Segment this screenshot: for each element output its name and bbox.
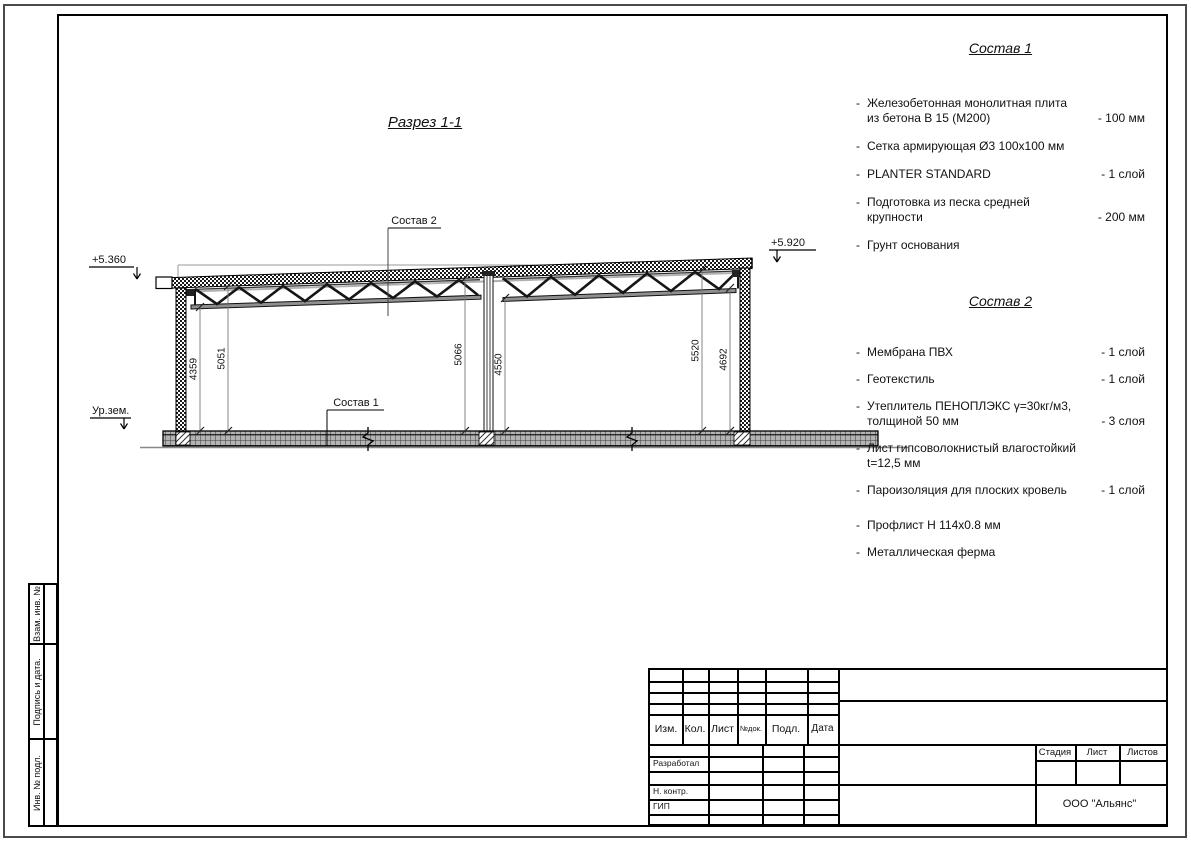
grid-line xyxy=(708,744,710,824)
bullet-dash: - xyxy=(856,545,867,560)
spec-item-text: Грунт основания xyxy=(867,238,960,253)
divider xyxy=(43,645,45,738)
stamp-label: Взам. инв. № xyxy=(32,586,42,642)
spec2-item: - Утеплитель ПЕНОПЛЭКС γ=30кг/м3, толщин… xyxy=(856,399,1145,429)
section-drawing: 4359 5051 5066 4550 xyxy=(89,215,908,451)
spec2-item: - Профлист Н 114х0.8 мм xyxy=(856,518,1145,533)
divider xyxy=(43,740,45,825)
tb-stage-list: Лист xyxy=(1075,744,1119,760)
spec2-item: - Лист гипсоволокнистый влагостойкий t=1… xyxy=(856,441,1145,471)
floor-slab xyxy=(163,431,878,446)
bullet-dash: - xyxy=(856,238,867,253)
tb-company: ООО "Альянс" xyxy=(1035,784,1164,824)
bullet-dash: - xyxy=(856,518,867,533)
stamp-cell-vzam: Взам. инв. № xyxy=(28,583,58,645)
spec-item-text: Подготовка из песка средней крупности xyxy=(867,195,1030,225)
grid-line xyxy=(650,814,838,816)
spec-item-value: - 100 мм xyxy=(1092,111,1145,126)
spec-item-value: - 3 слоя xyxy=(1095,414,1145,429)
tb-col-podl: Подл. xyxy=(765,714,807,744)
spec1-item: - Сетка армирующая Ø3 100х100 мм xyxy=(856,139,1145,154)
grid-line xyxy=(838,670,840,824)
dimension-4550: 4550 xyxy=(494,294,510,435)
spec-item-value: - 1 слой xyxy=(1095,345,1145,360)
spec-item-text: Сетка армирующая Ø3 100х100 мм xyxy=(867,139,1064,154)
spec-item-text: Профлист Н 114х0.8 мм xyxy=(867,518,1001,533)
bullet-dash: - xyxy=(856,441,867,456)
grid-line xyxy=(650,771,838,773)
column-middle xyxy=(482,271,495,431)
bullet-dash: - xyxy=(856,139,867,154)
grid-line xyxy=(650,681,838,683)
tb-role-nkontr: Н. контр. xyxy=(653,784,707,799)
spec2-item: - Пароизоляция для плоских кровель - 1 с… xyxy=(856,483,1145,498)
svg-text:+5.360: +5.360 xyxy=(92,254,126,266)
divider xyxy=(43,585,45,643)
footing-block-right xyxy=(734,432,750,445)
spec-sostav2: Состав 2 - Мембрана ПВХ - 1 слой - Геоте… xyxy=(856,293,1145,572)
grid-line xyxy=(762,744,764,824)
spec-item-text: Утеплитель ПЕНОПЛЭКС γ=30кг/м3, толщиной… xyxy=(867,399,1071,429)
spec-item-text: Металлическая ферма xyxy=(867,545,995,560)
ground-level-marker: Ур.зем. xyxy=(90,405,131,429)
section-title: Разрез 1-1 xyxy=(352,114,498,131)
tb-stage-listov: Листов xyxy=(1119,744,1166,760)
bullet-dash: - xyxy=(856,167,867,182)
spec-item-text: Геотекстиль xyxy=(867,372,935,387)
dimension-4692: 4692 xyxy=(719,284,735,435)
svg-text:Состав 2: Состав 2 xyxy=(391,215,437,227)
tb-col-list: Лист xyxy=(708,714,737,744)
spec2-item: - Мембрана ПВХ - 1 слой xyxy=(856,345,1145,360)
spec-item-value: - 1 слой xyxy=(1095,167,1145,182)
grid-line xyxy=(803,744,805,824)
bullet-dash: - xyxy=(856,483,867,498)
tb-stage-stadiya: Стадия xyxy=(1035,744,1075,760)
spec2-item: - Металлическая ферма xyxy=(856,545,1145,560)
spec1-item: - Подготовка из песка средней крупности … xyxy=(856,195,1145,225)
grid-line xyxy=(1035,760,1166,762)
svg-text:5520: 5520 xyxy=(691,339,702,362)
svg-text:4359: 4359 xyxy=(189,357,200,380)
spec-item-text: PLANTER STANDARD xyxy=(867,167,991,182)
bullet-dash: - xyxy=(856,372,867,387)
tb-col-data: Дата xyxy=(807,714,838,744)
footing-block-left xyxy=(176,432,190,445)
grid-line xyxy=(838,700,1166,702)
grid-line xyxy=(650,692,838,694)
spec2-heading: Состав 2 xyxy=(856,293,1145,309)
svg-text:+5.920: +5.920 xyxy=(771,237,805,249)
bullet-dash: - xyxy=(856,96,867,111)
stamp-label: Инв. № подл. xyxy=(32,754,42,810)
bullet-dash: - xyxy=(856,345,867,360)
svg-text:5051: 5051 xyxy=(217,347,228,370)
spec-item-text: Лист гипсоволокнистый влагостойкий t=12,… xyxy=(867,441,1076,471)
titleblock: Изм. Кол. Лист №док. Подл. Дата Разработ… xyxy=(648,668,1168,826)
svg-text:5066: 5066 xyxy=(454,343,465,366)
spec-item-value: - 1 слой xyxy=(1095,372,1145,387)
tb-role-razrabotal: Разработал xyxy=(653,756,707,771)
footing-block-middle xyxy=(479,432,494,445)
spec1-heading: Состав 1 xyxy=(856,40,1145,56)
svg-text:4550: 4550 xyxy=(494,353,505,376)
bullet-dash: - xyxy=(856,399,867,414)
svg-text:Состав 1: Состав 1 xyxy=(333,397,379,409)
tb-col-izm: Изм. xyxy=(650,714,682,744)
spec2-item: - Геотекстиль - 1 слой xyxy=(856,372,1145,387)
elevation-marker-left: +5.360 xyxy=(89,254,141,279)
wall-right xyxy=(740,268,750,432)
spec-item-value: - 1 слой xyxy=(1095,483,1145,498)
spec1-item: - Грунт основания xyxy=(856,238,1145,253)
svg-text:4692: 4692 xyxy=(719,348,730,371)
bullet-dash: - xyxy=(856,195,867,210)
dimension-4359: 4359 xyxy=(189,303,205,435)
spec-item-text: Железобетонная монолитная плита из бетон… xyxy=(867,96,1067,126)
spec1-item: - Железобетонная монолитная плита из бет… xyxy=(856,96,1145,126)
stamp-cell-podpis: Подпись и дата. xyxy=(28,643,58,740)
spec1-item: - PLANTER STANDARD - 1 слой xyxy=(856,167,1145,182)
spec-item-text: Мембрана ПВХ xyxy=(867,345,953,360)
tb-col-ndok: №док. xyxy=(737,714,765,744)
svg-text:Ур.зем.: Ур.зем. xyxy=(92,405,129,417)
tb-role-gip: ГИП xyxy=(653,799,707,814)
stamp-label: Подпись и дата. xyxy=(32,658,42,725)
wall-left xyxy=(176,288,186,432)
spec-item-value: - 200 мм xyxy=(1092,210,1145,225)
spec-item-text: Пароизоляция для плоских кровель xyxy=(867,483,1067,498)
stamp-cell-inv: Инв. № подл. xyxy=(28,738,58,827)
elevation-marker-right: +5.920 xyxy=(769,237,816,262)
tb-col-kol: Кол. xyxy=(682,714,708,744)
side-stamp: Взам. инв. № Подпись и дата. Инв. № подл… xyxy=(28,583,58,827)
spec-sostav1: Состав 1 - Железобетонная монолитная пли… xyxy=(856,40,1145,266)
grid-line xyxy=(650,703,838,705)
